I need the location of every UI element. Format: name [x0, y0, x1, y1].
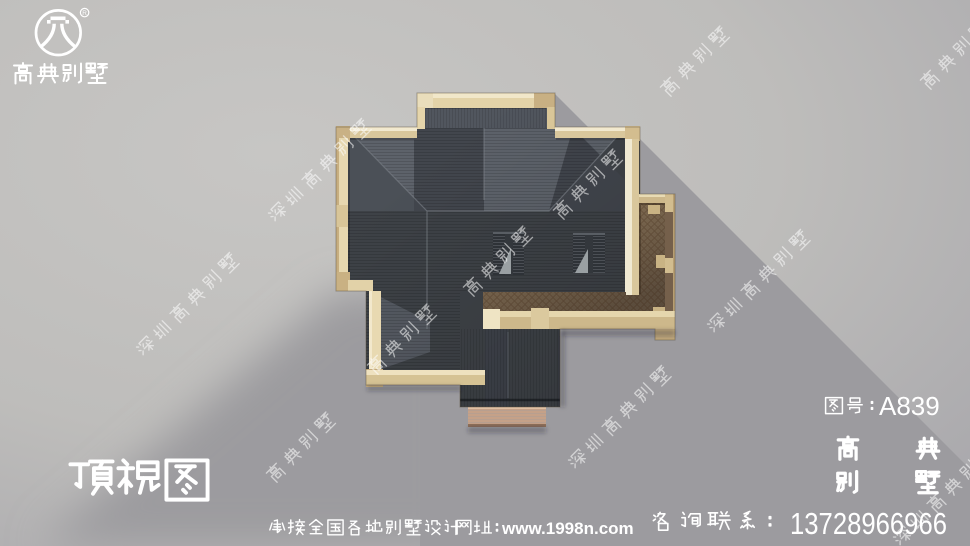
svg-text:R: R	[82, 10, 87, 17]
svg-text:13728966966: 13728966966	[790, 506, 947, 541]
svg-text:A839: A839	[879, 391, 940, 421]
svg-text:www.1998n.com: www.1998n.com	[501, 519, 634, 538]
